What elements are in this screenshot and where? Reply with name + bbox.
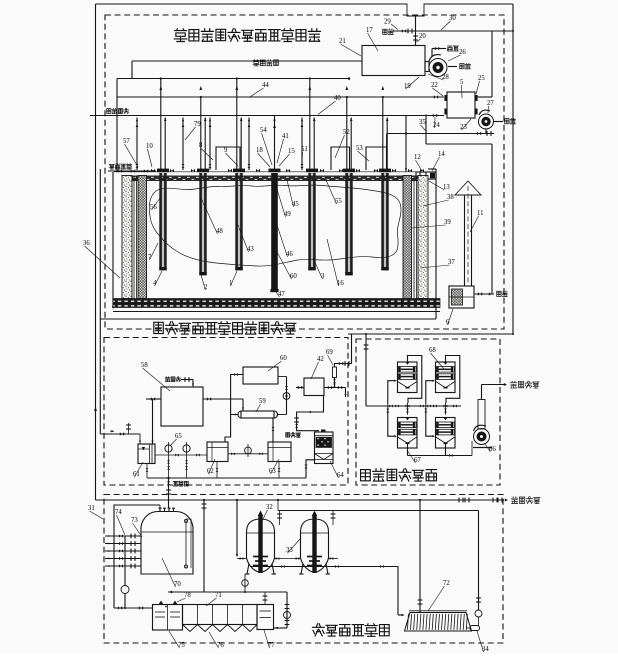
svg-text:70: 70 [174,581,181,588]
svg-text:69: 69 [326,349,333,356]
svg-text:19: 19 [404,83,411,90]
svg-text:52: 52 [343,129,350,136]
svg-text:15: 15 [288,148,295,155]
svg-text:35: 35 [419,119,426,126]
svg-text:54: 54 [260,127,267,134]
svg-text:43: 43 [247,246,254,253]
svg-text:36: 36 [83,240,90,247]
svg-text:58: 58 [141,362,148,369]
svg-text:51: 51 [301,146,308,153]
svg-text:60: 60 [290,273,297,280]
svg-text:34: 34 [482,646,489,653]
svg-text:12: 12 [414,154,421,161]
svg-text:79: 79 [194,121,201,128]
svg-text:41: 41 [282,133,289,140]
svg-text:5: 5 [460,79,464,86]
svg-text:4: 4 [153,280,157,287]
svg-text:24: 24 [433,122,440,129]
svg-text:25: 25 [478,75,485,82]
svg-text:9: 9 [224,147,228,154]
svg-text:53: 53 [356,145,363,152]
svg-text:29: 29 [384,19,391,26]
svg-text:27: 27 [487,100,494,107]
svg-text:22: 22 [431,82,438,89]
svg-text:49: 49 [284,211,291,218]
svg-text:71: 71 [215,592,222,599]
svg-text:14: 14 [438,151,445,158]
svg-text:63: 63 [269,468,276,475]
svg-text:76: 76 [217,642,224,649]
svg-text:55: 55 [335,198,342,205]
svg-text:74: 74 [115,509,122,516]
svg-text:59: 59 [259,398,266,405]
svg-text:72: 72 [443,580,450,587]
svg-text:61: 61 [133,471,140,478]
svg-text:73: 73 [131,517,138,524]
svg-text:65: 65 [175,433,182,440]
svg-text:8: 8 [199,142,203,149]
svg-text:32: 32 [266,504,273,511]
svg-text:56: 56 [150,204,157,211]
svg-text:18: 18 [256,147,263,154]
svg-text:17: 17 [366,27,373,34]
svg-text:48: 48 [216,228,223,235]
svg-text:64: 64 [337,472,344,479]
svg-text:77: 77 [268,642,275,649]
svg-text:31: 31 [88,505,95,512]
svg-text:68: 68 [429,347,436,354]
svg-text:7: 7 [148,254,152,261]
svg-text:11: 11 [477,210,484,217]
svg-text:42: 42 [317,356,324,363]
svg-text:57: 57 [123,138,130,145]
svg-text:21: 21 [339,38,346,45]
svg-text:10: 10 [146,143,153,150]
svg-text:46: 46 [286,251,293,258]
